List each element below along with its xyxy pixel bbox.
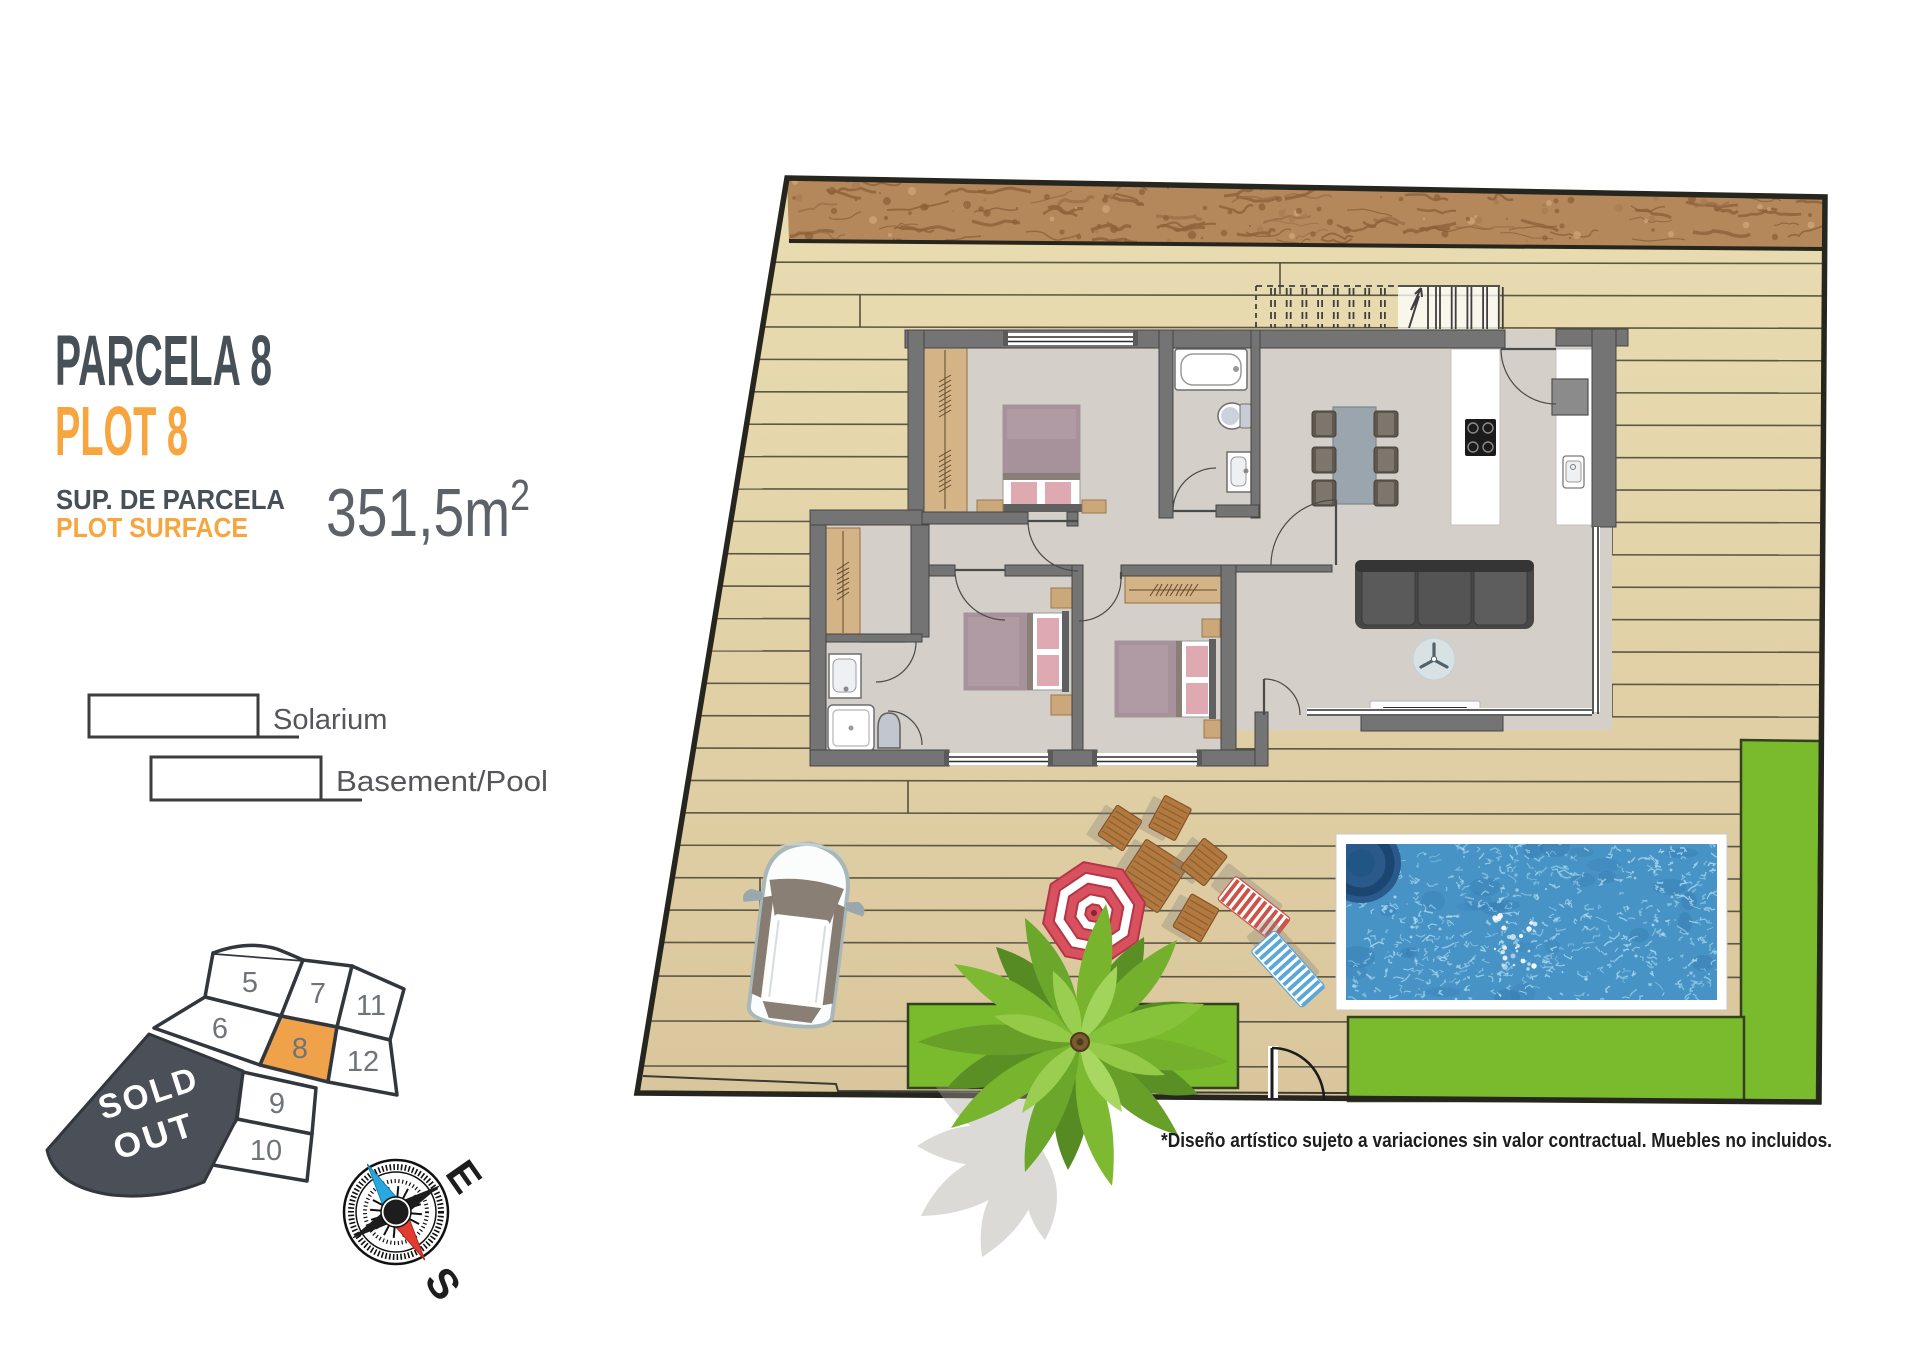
svg-text:12: 12: [347, 1046, 379, 1078]
svg-text:10: 10: [250, 1135, 282, 1167]
svg-text:6: 6: [212, 1013, 228, 1045]
svg-text:11: 11: [356, 990, 386, 1022]
svg-text:Solarium: Solarium: [273, 704, 387, 736]
svg-text:*Diseño artístico sujeto a var: *Diseño artístico sujeto a variaciones s…: [1161, 1130, 1832, 1152]
svg-text:PLOT SURFACE: PLOT SURFACE: [56, 512, 248, 543]
svg-text:Basement/Pool: Basement/Pool: [336, 766, 548, 798]
svg-text:PARCELA 8: PARCELA 8: [55, 322, 272, 401]
svg-text:9: 9: [269, 1088, 285, 1120]
svg-text:7: 7: [310, 978, 326, 1010]
svg-text:PLOT 8: PLOT 8: [55, 392, 188, 470]
svg-text:5: 5: [242, 967, 258, 999]
svg-text:351,5m2: 351,5m2: [326, 471, 530, 551]
svg-text:SUP. DE PARCELA: SUP. DE PARCELA: [56, 484, 285, 515]
svg-text:8: 8: [292, 1033, 308, 1065]
